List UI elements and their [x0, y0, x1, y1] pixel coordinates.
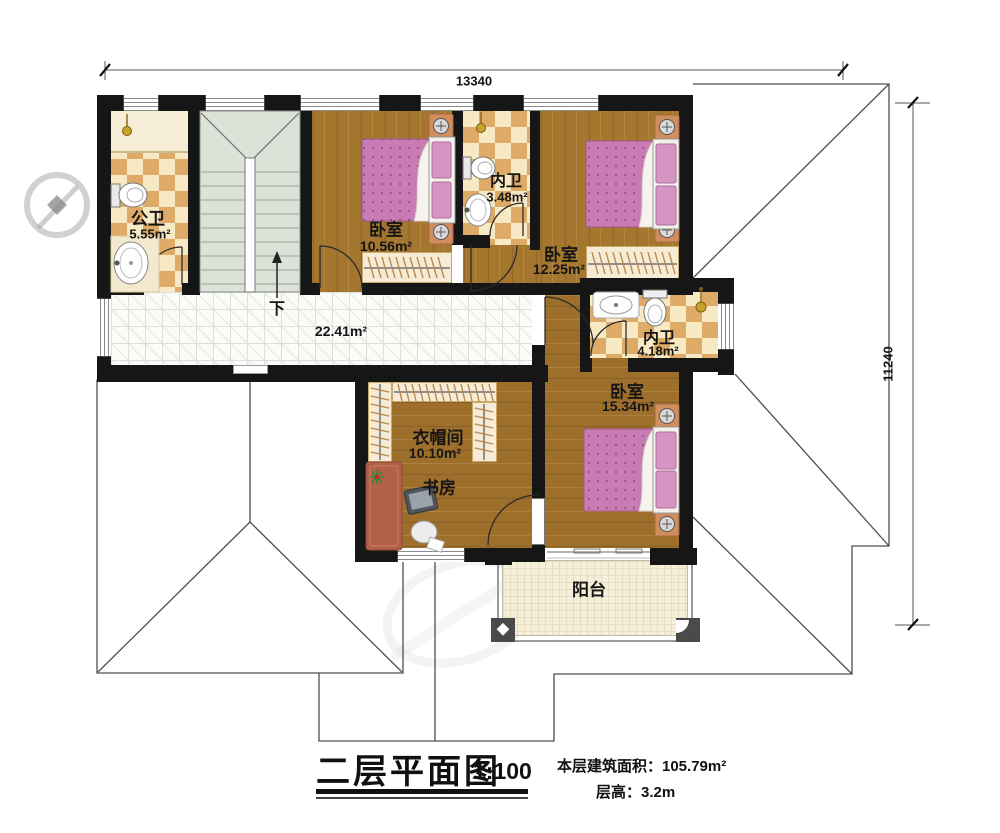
drawing-scale: 1:100 — [473, 758, 532, 785]
room-area-bedroom-right: 12.25m² — [533, 261, 585, 277]
floor-height-note: 层高：3.2m — [596, 781, 675, 802]
stairs-icon — [200, 111, 300, 298]
stairs-down-label: 下 — [269, 295, 285, 319]
bed-right-icon — [586, 139, 679, 229]
room-label-study: 书房 — [422, 474, 456, 499]
room-area-public-bath: 5.55m² — [129, 227, 170, 242]
room-area-inner-bath-mid: 4.18m² — [637, 344, 678, 359]
bed-top-icon — [362, 137, 455, 223]
title-underline-thick — [316, 789, 528, 794]
room-area-bedroom-top: 10.56m² — [360, 238, 412, 254]
dimension-top-label: 13340 — [456, 74, 492, 89]
floor-plan-canvas: 公卫 5.55m² 卧室 10.56m² 内卫 3.48m² 卧室 12.25m… — [0, 0, 1000, 833]
title-underline-thin — [316, 797, 528, 799]
bed-big-icon — [584, 427, 679, 513]
room-label-inner-bath-top: 内卫 — [490, 167, 522, 191]
hallway-area-label: 22.41m² — [315, 323, 367, 339]
room-area-inner-bath-top: 3.48m² — [486, 190, 527, 205]
room-area-cloakroom: 10.10m² — [409, 445, 461, 461]
inner-bath-mid-fixtures — [593, 287, 706, 326]
public-bath-fixtures — [111, 114, 159, 292]
room-label-bedroom-top: 卧室 — [369, 216, 403, 241]
dimension-right-label: 11240 — [881, 346, 896, 381]
room-area-bedroom-big: 15.34m² — [602, 398, 654, 414]
furniture-layer — [0, 0, 1000, 833]
room-label-balcony: 阳台 — [572, 576, 606, 601]
floor-area-note: 本层建筑面积：105.79m² — [557, 755, 726, 776]
